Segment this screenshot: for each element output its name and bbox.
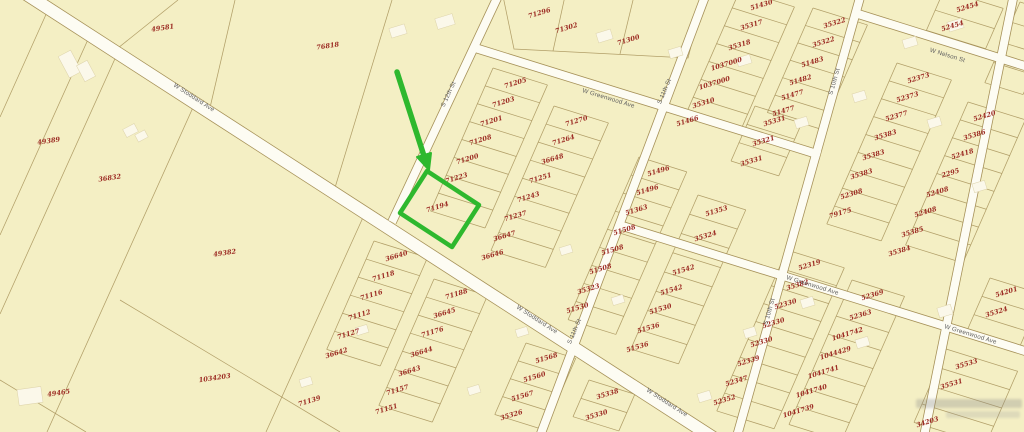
- watermark-strip: [946, 411, 1020, 418]
- watermark-strip: [916, 399, 1022, 408]
- parcel-map-canvas[interactable]: 4958176818493893683249382494651034203712…: [0, 0, 1024, 432]
- building-footprint: [17, 386, 43, 405]
- map-viewport[interactable]: 4958176818493893683249382494651034203712…: [0, 0, 1024, 432]
